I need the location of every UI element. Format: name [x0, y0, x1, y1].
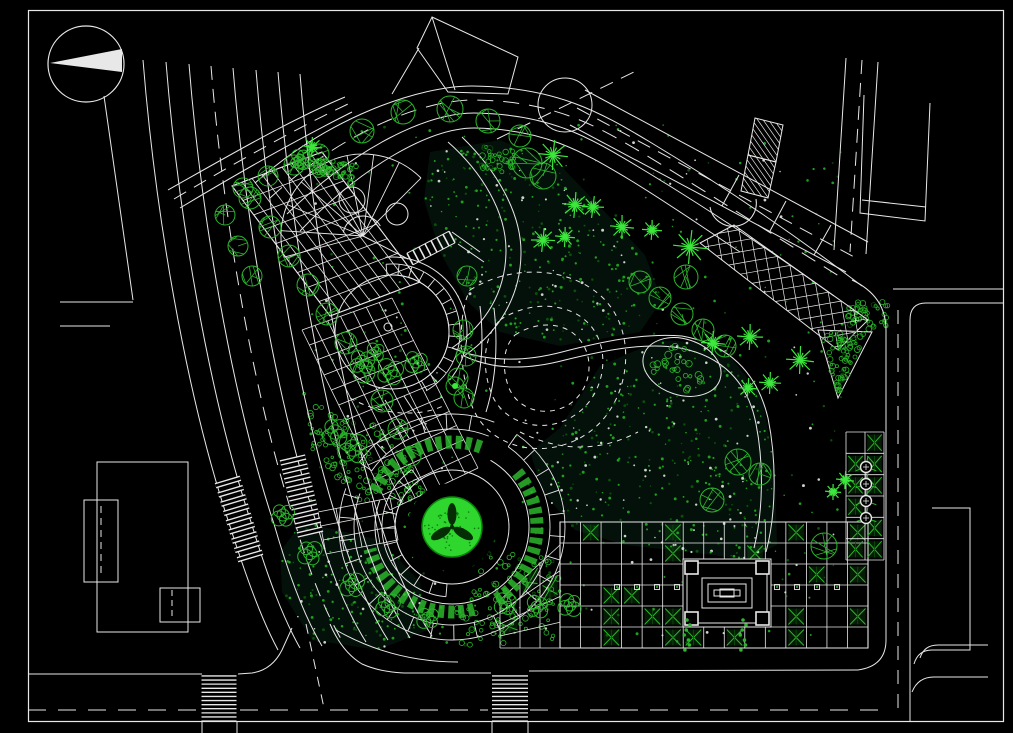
grass-dot	[510, 191, 512, 193]
planted-cell	[604, 609, 620, 625]
grass-dot	[569, 561, 571, 563]
shrub-dot	[331, 456, 334, 459]
grass-dot	[561, 179, 563, 181]
grass-dot	[588, 230, 590, 232]
ring-tick	[443, 357, 453, 362]
grass-dot	[447, 158, 450, 161]
grass-dot	[515, 331, 517, 333]
grass-dot	[538, 211, 539, 212]
tree-branch	[682, 314, 685, 325]
grass-dot	[538, 245, 540, 247]
planted-cell	[850, 609, 866, 625]
grass-dot	[696, 480, 699, 483]
planted-cell	[665, 546, 681, 562]
grass-dot	[746, 535, 748, 537]
grass-dot	[750, 499, 752, 501]
grass-dot	[451, 457, 453, 459]
grass-dot	[597, 260, 599, 262]
grass-dot	[595, 256, 597, 258]
grass-dot	[545, 627, 547, 629]
grass-dot	[765, 287, 767, 289]
grass-dot	[592, 229, 594, 231]
grass-dot	[442, 169, 444, 171]
grass-dot	[607, 288, 609, 290]
grass-dot	[563, 273, 565, 275]
grass-dot	[674, 462, 675, 463]
line	[862, 200, 926, 207]
grass-dot	[551, 428, 553, 430]
tree-branch	[362, 131, 372, 137]
vine-dot	[743, 638, 747, 642]
grass-dot	[322, 628, 325, 631]
path-line	[914, 508, 970, 664]
grass-dot	[650, 558, 653, 561]
grass-dot	[696, 550, 699, 553]
island-texture	[458, 517, 460, 519]
island-texture	[432, 527, 434, 529]
grass-dot	[736, 403, 738, 405]
grass-dot	[540, 222, 543, 225]
shrub-dot	[388, 486, 391, 489]
grass-dot	[602, 244, 604, 246]
grass-dot	[615, 125, 617, 127]
grass-dot	[342, 607, 344, 609]
grass-dot	[652, 389, 654, 391]
grass-dot	[610, 434, 612, 436]
grass-dot	[323, 641, 326, 644]
grass-dot	[730, 555, 732, 557]
ring-tick	[550, 536, 565, 537]
grass-dot	[730, 427, 732, 429]
grass-dot	[607, 408, 609, 410]
grass-dot	[412, 557, 413, 558]
island-texture	[459, 526, 461, 528]
grass-dot	[614, 390, 616, 392]
grass-dot	[618, 484, 620, 486]
planted-cell	[788, 630, 804, 646]
palm-center	[621, 226, 624, 229]
grass-dot	[622, 416, 625, 419]
grass-dot	[531, 227, 533, 229]
grass-dot	[485, 389, 488, 392]
grass-dot	[729, 514, 731, 516]
planted-cell	[850, 525, 866, 541]
grid-line	[242, 182, 340, 312]
grass-dot	[558, 485, 560, 487]
grass-dot	[464, 136, 466, 138]
island-texture	[447, 536, 449, 538]
grass-dot	[581, 515, 582, 516]
grass-dot	[365, 635, 366, 636]
vine-dot	[682, 633, 686, 637]
line	[529, 670, 858, 671]
island-texture	[468, 511, 470, 513]
grass-dot	[763, 519, 765, 521]
grass-dot	[612, 436, 615, 439]
grass-dot	[431, 173, 433, 175]
grass-dot	[833, 565, 835, 567]
layer-north-arrow	[48, 26, 124, 102]
grass-dot	[448, 204, 449, 205]
grass-dot	[353, 627, 356, 630]
line	[834, 58, 846, 250]
grass-dot	[820, 321, 822, 323]
grass-dot	[587, 234, 589, 236]
grass-dot	[686, 500, 689, 503]
grass-dot	[696, 433, 697, 434]
grass-dot	[508, 245, 510, 247]
grass-dot	[413, 627, 415, 629]
grass-dot	[515, 317, 517, 319]
grass-dot	[688, 463, 690, 465]
grass-dot	[755, 523, 757, 525]
grass-dot	[529, 312, 531, 314]
grass-dot	[509, 257, 511, 259]
grass-dot	[664, 576, 666, 578]
grass-dot	[609, 291, 611, 293]
grass-dot	[651, 261, 653, 263]
shrub-dot	[324, 458, 329, 463]
grass-dot	[606, 359, 608, 361]
shrub-dot	[533, 592, 536, 595]
grass-dot	[645, 523, 648, 526]
grass-dot	[519, 280, 521, 282]
ring-tick	[339, 517, 354, 518]
grass-dot	[628, 325, 630, 327]
tree-symbol	[371, 390, 393, 412]
hatch-line	[679, 281, 893, 319]
grass-dot	[751, 527, 753, 529]
grass-dot	[332, 617, 334, 619]
grass-dot	[495, 239, 497, 241]
grass-dot	[487, 220, 489, 222]
vine-dot	[687, 638, 691, 642]
grass-dot	[606, 385, 609, 388]
grass-dot	[584, 464, 587, 467]
grass-dot	[430, 199, 431, 200]
grass-dot	[704, 419, 707, 422]
grass-dot	[513, 177, 516, 180]
island-texture	[447, 538, 449, 540]
grass-dot	[623, 507, 624, 508]
grass-dot	[556, 164, 558, 166]
grass-dot	[545, 298, 547, 300]
grass-dot	[502, 198, 505, 201]
grass-dot	[391, 164, 393, 166]
grass-dot	[369, 572, 372, 575]
grass-dot	[563, 435, 565, 437]
grass-dot	[398, 291, 401, 294]
grass-dot	[639, 497, 641, 499]
grass-dot	[518, 326, 520, 328]
grass-dot	[746, 487, 748, 489]
planted-cell	[604, 630, 620, 646]
shrub-dot	[363, 487, 366, 490]
grass-dot	[692, 307, 694, 309]
planted-cell	[665, 630, 681, 646]
line	[722, 175, 739, 206]
grass-dot	[622, 278, 624, 280]
island-texture	[444, 512, 446, 514]
grass-dot	[477, 205, 479, 207]
tree-symbol	[476, 109, 500, 133]
grass-dot	[832, 162, 834, 164]
grass-dot	[430, 179, 432, 181]
grass-dot	[567, 494, 569, 496]
grass-dot	[530, 301, 532, 303]
island-texture	[457, 514, 459, 516]
grass-dot	[670, 518, 672, 520]
island-texture	[439, 517, 441, 519]
grass-dot	[483, 238, 485, 240]
grass-dot	[653, 278, 655, 280]
grass-dot	[713, 300, 716, 303]
grass-dot	[370, 591, 373, 594]
palm-center	[564, 236, 567, 239]
shrub-dot	[830, 363, 833, 366]
grass-dot	[775, 550, 776, 551]
ring-tick	[469, 416, 472, 431]
grass-dot	[779, 171, 781, 173]
tree-branch	[395, 103, 403, 112]
grass-dot	[626, 310, 627, 311]
grass-dot	[633, 464, 635, 466]
palm-center	[844, 479, 847, 482]
grass-dot	[474, 276, 476, 278]
grass-dot	[586, 324, 588, 326]
island-texture	[428, 524, 430, 526]
grass-dot	[758, 486, 761, 489]
grass-dot	[602, 492, 604, 494]
grass-dot	[671, 421, 673, 423]
grass-dot	[539, 266, 541, 268]
grass-dot	[724, 350, 725, 351]
island-texture	[474, 528, 476, 530]
grass-dot	[738, 557, 740, 559]
island-texture	[441, 515, 443, 517]
north-arrow-wedge	[50, 49, 122, 72]
palm-center	[712, 342, 715, 345]
grass-dot	[622, 280, 624, 282]
grass-dot	[581, 281, 584, 284]
grass-dot	[780, 254, 782, 256]
grass-dot	[281, 560, 283, 562]
grass-dot	[569, 253, 572, 256]
shrub-dot	[501, 640, 506, 645]
grass-dot	[285, 594, 288, 597]
shrub-dot	[841, 349, 845, 353]
grass-dot	[396, 316, 398, 318]
lawn-mass	[530, 340, 777, 560]
grass-dot	[715, 466, 718, 469]
grass-dot	[554, 285, 557, 288]
grass-dot	[683, 423, 685, 425]
grass-dot	[623, 499, 625, 501]
grass-dot	[362, 608, 365, 611]
grass-dot	[297, 584, 300, 587]
grass-dot	[687, 461, 689, 463]
grass-dot	[553, 329, 555, 331]
grass-dot	[721, 485, 724, 488]
grass-dot	[622, 322, 625, 325]
grass-dot	[730, 396, 732, 398]
tree-symbol	[674, 265, 698, 289]
grass-dot	[316, 183, 319, 186]
grass-dot	[565, 433, 567, 435]
tree-branch	[356, 121, 374, 129]
hatch-line	[718, 166, 754, 218]
grass-dot	[802, 484, 805, 487]
grass-dot	[450, 246, 452, 248]
grass-dot	[466, 151, 469, 154]
grass-dot	[695, 387, 697, 389]
grass-dot	[473, 295, 476, 298]
grass-dot	[583, 322, 586, 325]
grass-dot	[810, 634, 812, 636]
grass-dot	[799, 502, 802, 505]
grass-dot	[569, 279, 572, 282]
grass-dot	[522, 221, 524, 223]
grass-dot	[813, 380, 815, 382]
island-texture	[469, 542, 471, 544]
grass-dot	[288, 554, 290, 556]
grass-dot	[610, 392, 613, 395]
island-texture	[438, 515, 440, 517]
grass-dot	[793, 346, 795, 348]
grass-dot	[576, 299, 578, 301]
grass-dot	[562, 330, 563, 331]
grass-dot	[633, 304, 636, 307]
grass-dot	[601, 229, 604, 232]
grass-dot	[558, 223, 560, 225]
grass-dot	[431, 196, 433, 198]
shrub-cluster	[405, 352, 427, 373]
grass-dot	[546, 328, 549, 331]
grass-dot	[529, 287, 531, 289]
grass-dot	[521, 196, 524, 199]
grass-dot	[757, 421, 760, 424]
grass-dot	[425, 197, 427, 199]
grass-dot	[641, 351, 643, 353]
palm-symbol	[825, 484, 841, 500]
grass-dot	[591, 609, 593, 611]
grass-dot	[628, 457, 630, 459]
grass-dot	[764, 439, 766, 441]
path-line	[910, 303, 1004, 320]
grass-dot	[786, 300, 788, 302]
north-arrow	[48, 26, 124, 102]
tree-symbol	[228, 236, 248, 256]
grass-dot	[394, 628, 396, 630]
grass-dot	[551, 502, 553, 504]
grass-dot	[570, 499, 572, 501]
tree-branch	[450, 109, 462, 114]
grass-dot	[653, 304, 656, 307]
grass-dot	[485, 224, 487, 226]
grass-dot	[481, 183, 484, 186]
grass-dot	[381, 446, 383, 448]
grass-dot	[714, 470, 716, 472]
grass-dot	[327, 590, 330, 593]
grass-dot	[584, 451, 587, 454]
grass-dot	[739, 162, 742, 165]
grass-dot	[593, 296, 595, 298]
grass-dot	[610, 423, 612, 425]
grass-dot	[552, 284, 554, 286]
grass-dot	[403, 525, 406, 528]
grass-dot	[687, 169, 690, 172]
path-line	[238, 628, 292, 674]
grass-dot	[511, 176, 513, 178]
grass-dot	[672, 219, 674, 221]
grass-dot	[690, 551, 692, 553]
grass-dot	[562, 498, 563, 499]
grass-dot	[788, 573, 791, 576]
grass-dot	[632, 141, 635, 144]
hatch-line	[742, 184, 780, 398]
line	[770, 201, 786, 231]
shrub-dot	[470, 598, 473, 601]
grass-dot	[707, 410, 708, 411]
shrub-dot	[827, 357, 833, 363]
hatch-line	[664, 194, 878, 232]
grass-dot	[588, 464, 590, 466]
grass-dot	[559, 219, 562, 222]
hatch-line	[861, 163, 899, 377]
grass-dot	[574, 419, 576, 421]
path-line	[168, 97, 345, 190]
ring-tick	[449, 336, 460, 337]
hatch-line	[872, 162, 910, 376]
grass-dot	[697, 454, 700, 457]
grass-dot	[617, 297, 619, 299]
shrub-dot	[544, 630, 549, 635]
grass-dot	[648, 544, 650, 546]
grass-dot	[473, 227, 475, 229]
grid-line	[262, 175, 360, 305]
grass-dot	[729, 495, 732, 498]
shrub-dot	[459, 640, 464, 645]
grass-dot	[506, 302, 508, 304]
grass-dot	[465, 225, 467, 227]
grass-dot	[629, 393, 632, 396]
grass-dot	[737, 509, 739, 511]
grass-dot	[609, 445, 611, 447]
grass-dot	[524, 264, 526, 266]
grass-dot	[818, 223, 819, 224]
grass-dot	[593, 235, 595, 237]
grass-dot	[569, 227, 572, 230]
grass-dot	[599, 303, 601, 305]
grass-dot	[585, 406, 587, 408]
grass-dot	[672, 460, 674, 462]
grass-dot	[294, 532, 296, 534]
grass-dot	[672, 425, 675, 428]
grass-dot	[833, 534, 835, 536]
grass-dot	[769, 505, 771, 507]
grass-dot	[392, 637, 395, 640]
grass-dot	[705, 399, 708, 402]
grass-dot	[318, 551, 320, 553]
grass-dot	[312, 637, 315, 640]
grass-dot	[764, 199, 767, 202]
grass-dot	[682, 399, 684, 401]
planted-cell	[727, 630, 743, 646]
grass-dot	[629, 426, 631, 428]
grass-dot	[643, 413, 645, 415]
line	[866, 62, 878, 254]
grass-dot	[329, 551, 331, 553]
